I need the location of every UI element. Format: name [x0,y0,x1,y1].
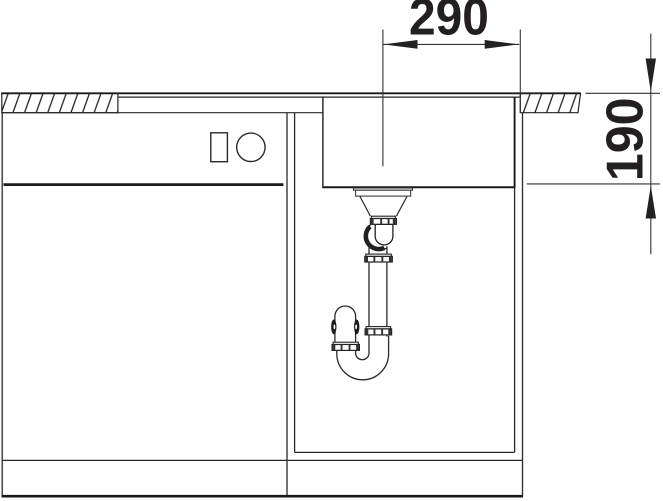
svg-text:190: 190 [596,97,654,181]
svg-text:290: 290 [409,0,489,46]
